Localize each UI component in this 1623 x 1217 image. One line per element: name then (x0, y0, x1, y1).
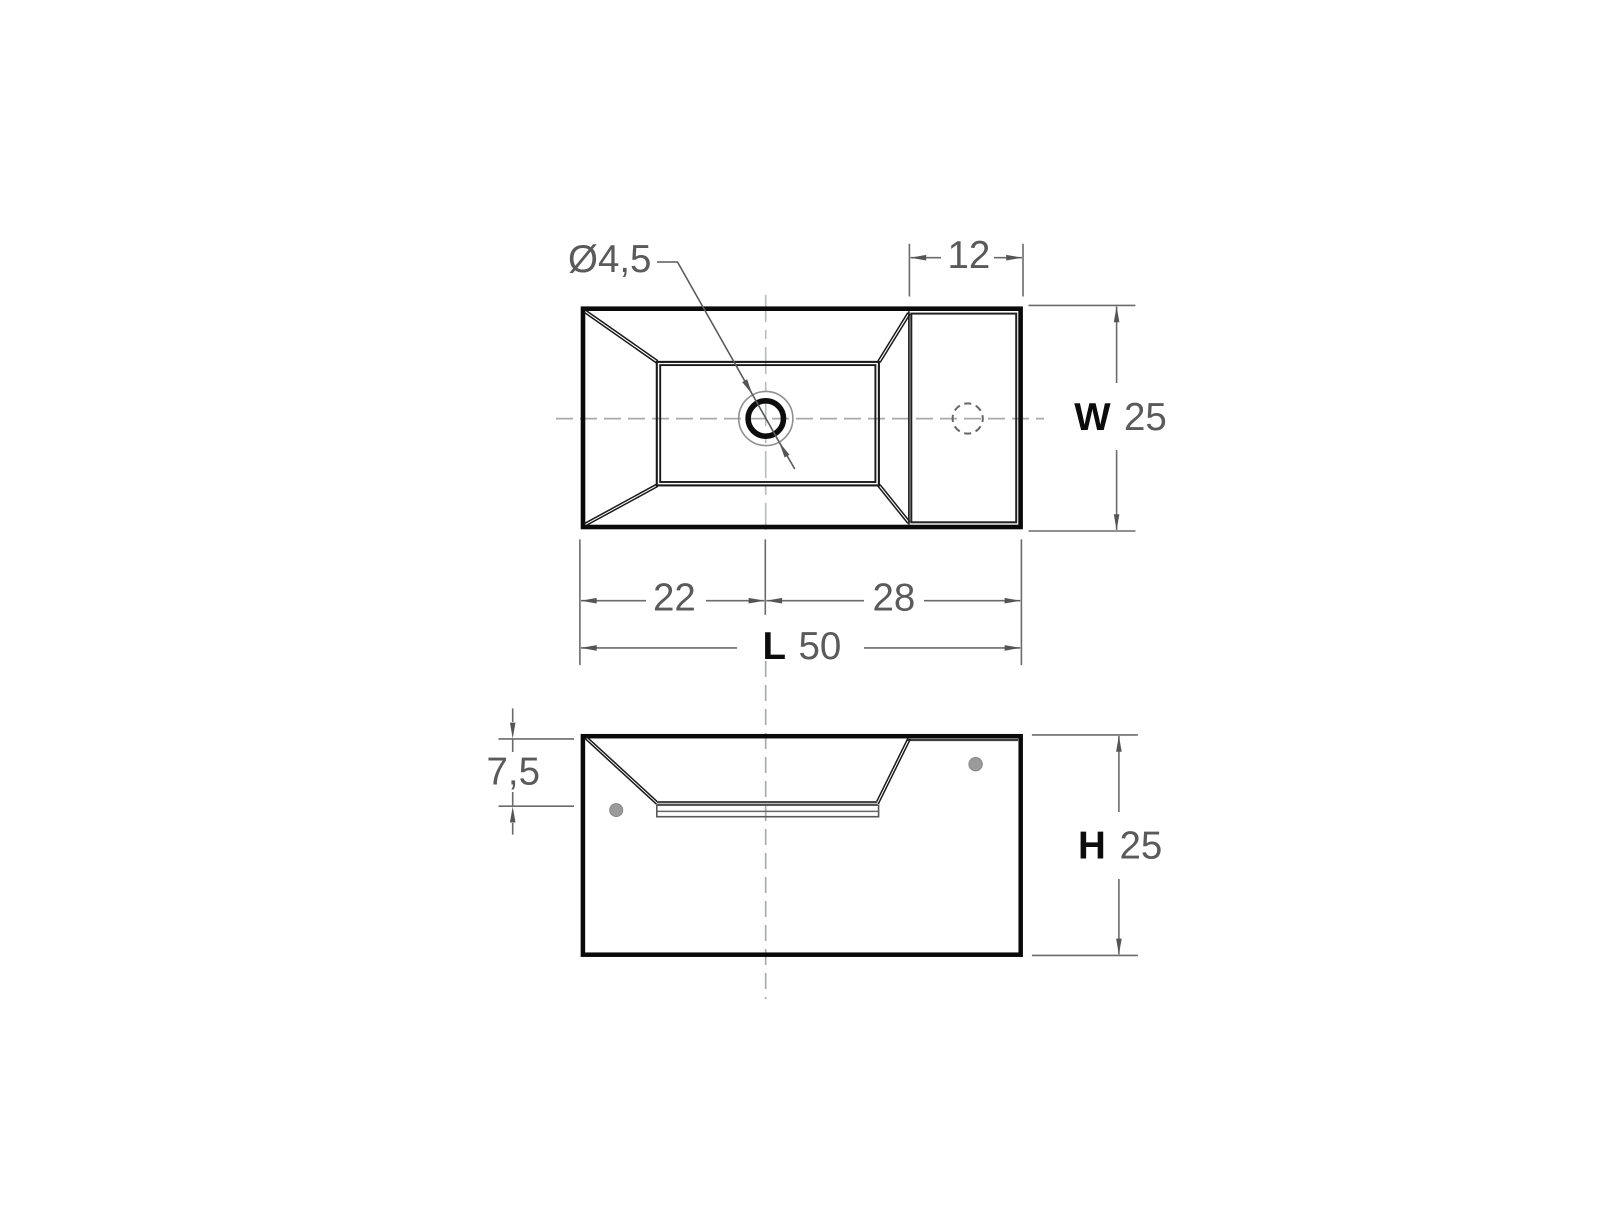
svg-text:25: 25 (1124, 396, 1167, 439)
svg-text:L: L (763, 625, 787, 668)
svg-text:25: 25 (1120, 825, 1163, 868)
svg-text:12: 12 (948, 234, 991, 277)
svg-text:22: 22 (653, 577, 696, 620)
svg-text:7,5: 7,5 (487, 751, 541, 794)
svg-text:50: 50 (799, 625, 842, 668)
svg-text:Ø4,5: Ø4,5 (568, 238, 651, 281)
svg-text:H: H (1078, 825, 1106, 868)
svg-text:28: 28 (873, 577, 916, 620)
svg-text:W: W (1074, 396, 1111, 439)
